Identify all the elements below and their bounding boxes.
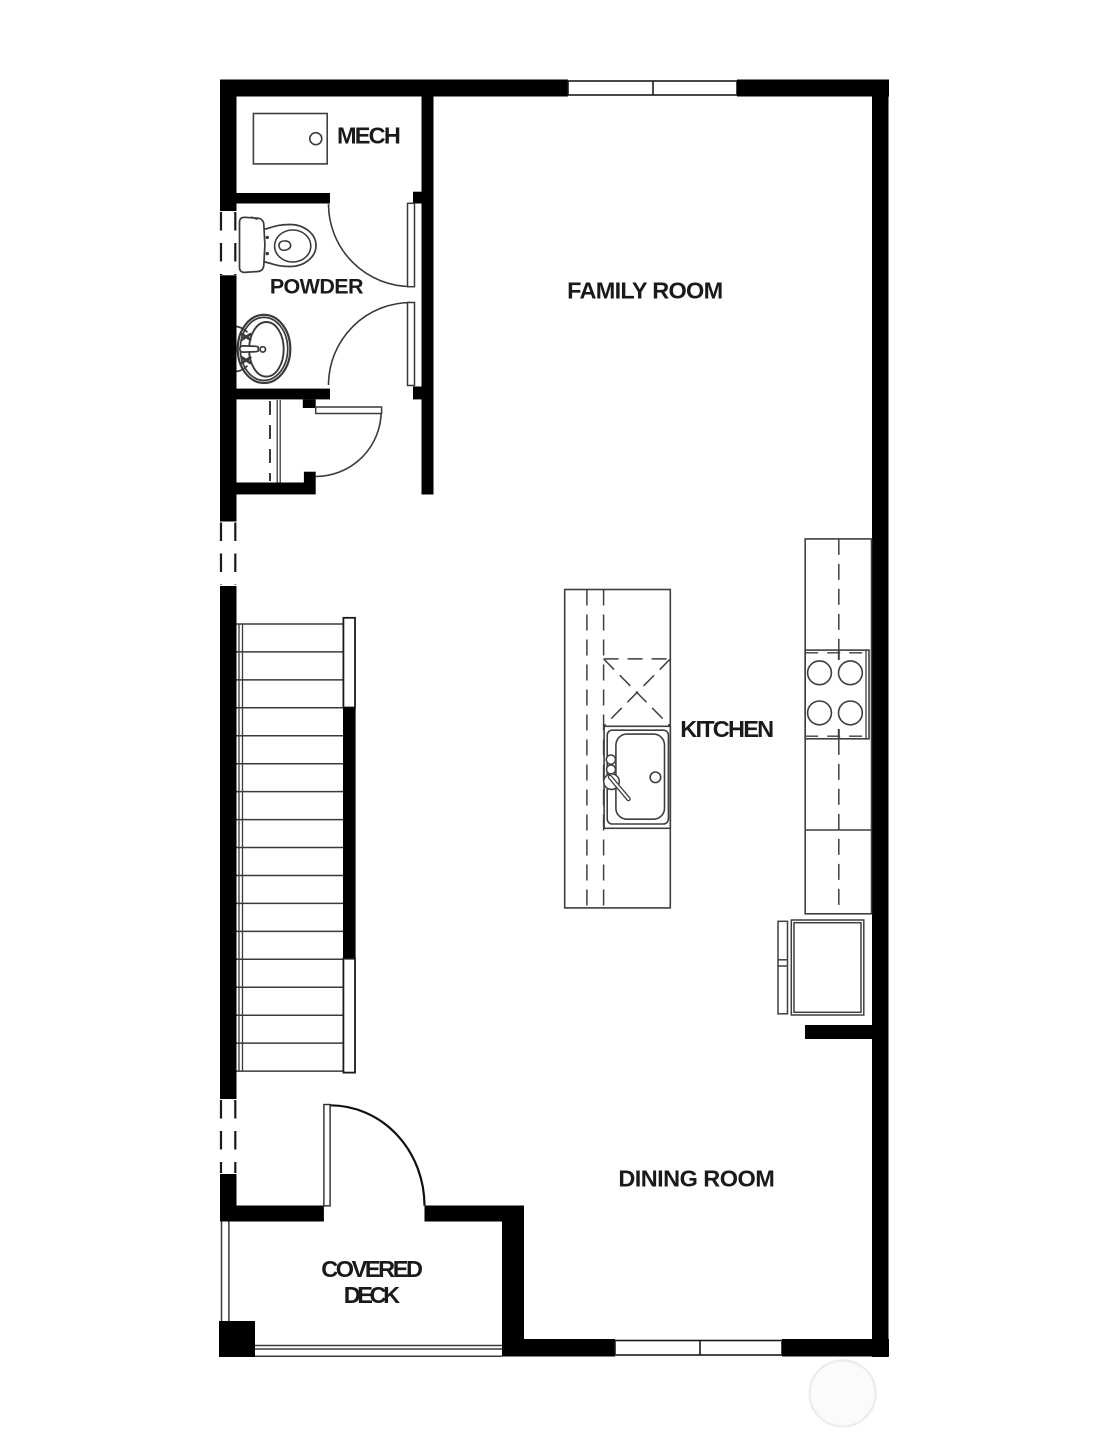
svg-text:DINING ROOM: DINING ROOM [618,1165,774,1191]
svg-text:MECH: MECH [337,122,400,148]
svg-text:POWDER: POWDER [270,275,364,299]
svg-text:KITCHEN: KITCHEN [680,716,773,742]
svg-text:DECK: DECK [344,1282,400,1308]
svg-text:COVERED: COVERED [321,1256,422,1282]
svg-text:FAMILY ROOM: FAMILY ROOM [567,278,722,304]
